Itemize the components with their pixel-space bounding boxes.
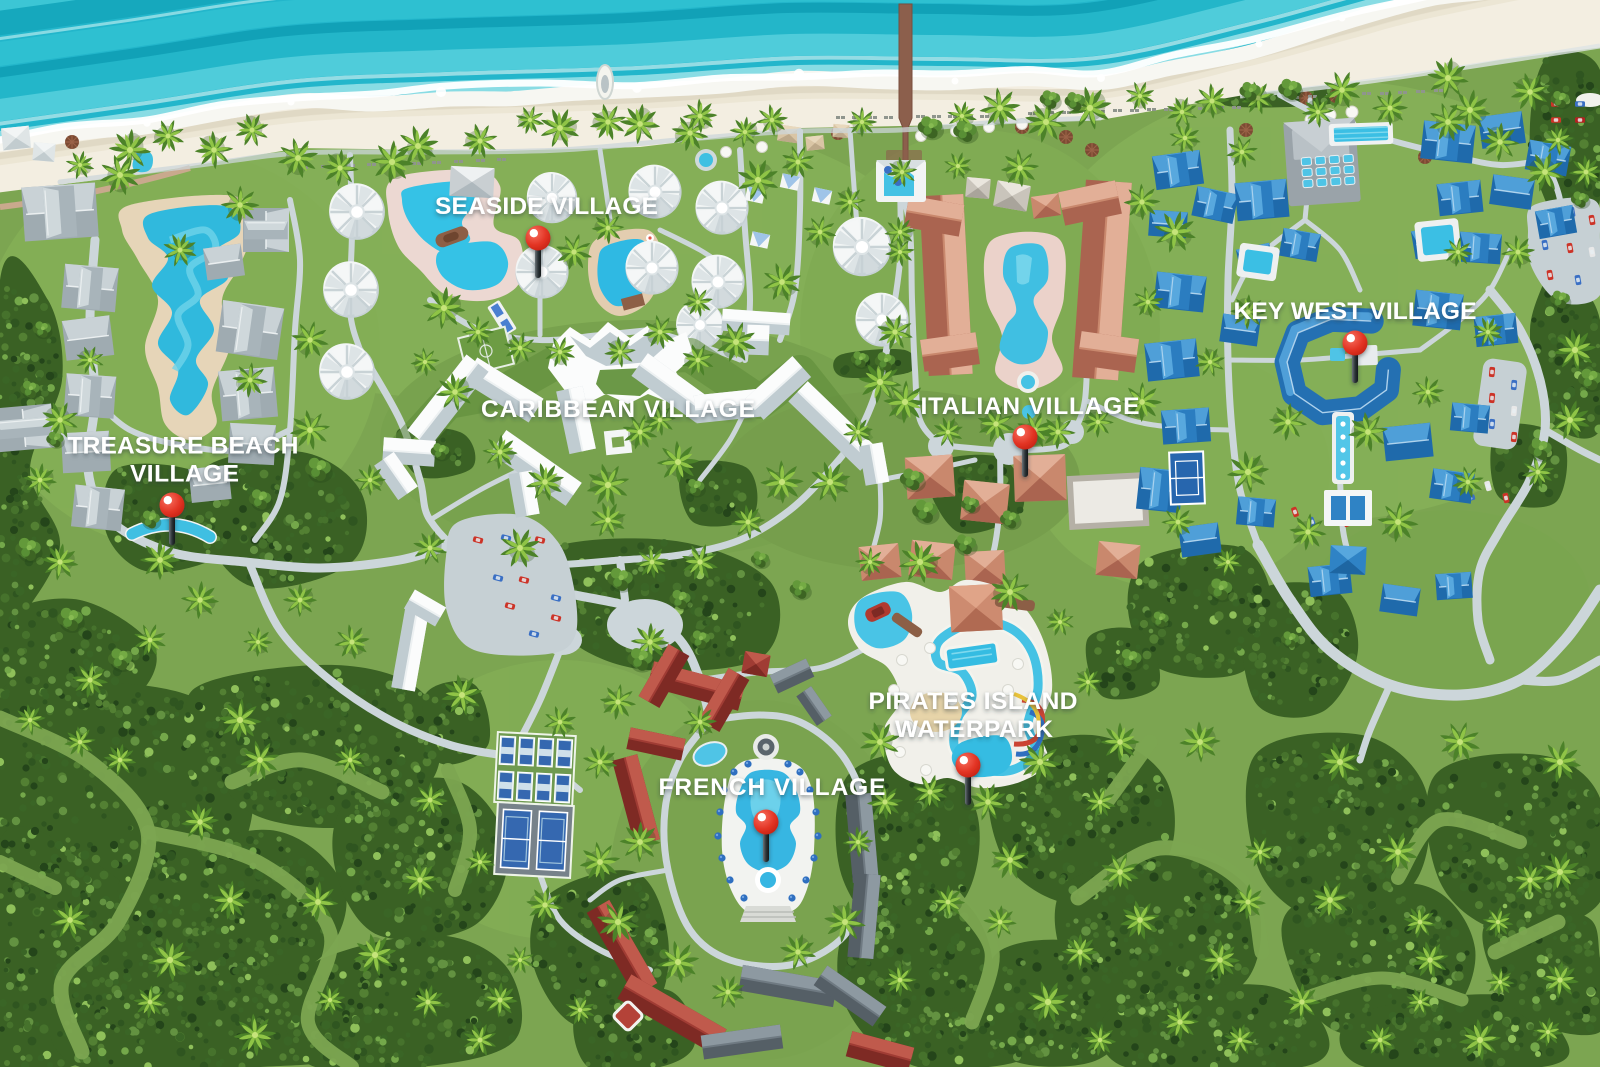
svg-text:SEASIDE VILLAGE: SEASIDE VILLAGE [435,193,658,220]
svg-text:ITALIAN VILLAGE: ITALIAN VILLAGE [921,393,1140,420]
svg-text:WATERPARK: WATERPARK [895,716,1053,743]
svg-text:VILLAGE: VILLAGE [130,461,239,488]
svg-text:PIRATES ISLAND: PIRATES ISLAND [869,688,1078,715]
svg-text:KEY WEST VILLAGE: KEY WEST VILLAGE [1234,298,1477,325]
svg-text:FRENCH VILLAGE: FRENCH VILLAGE [659,774,886,801]
svg-text:CARIBBEAN VILLAGE: CARIBBEAN VILLAGE [481,396,755,423]
svg-text:TREASURE BEACH: TREASURE BEACH [68,433,299,460]
